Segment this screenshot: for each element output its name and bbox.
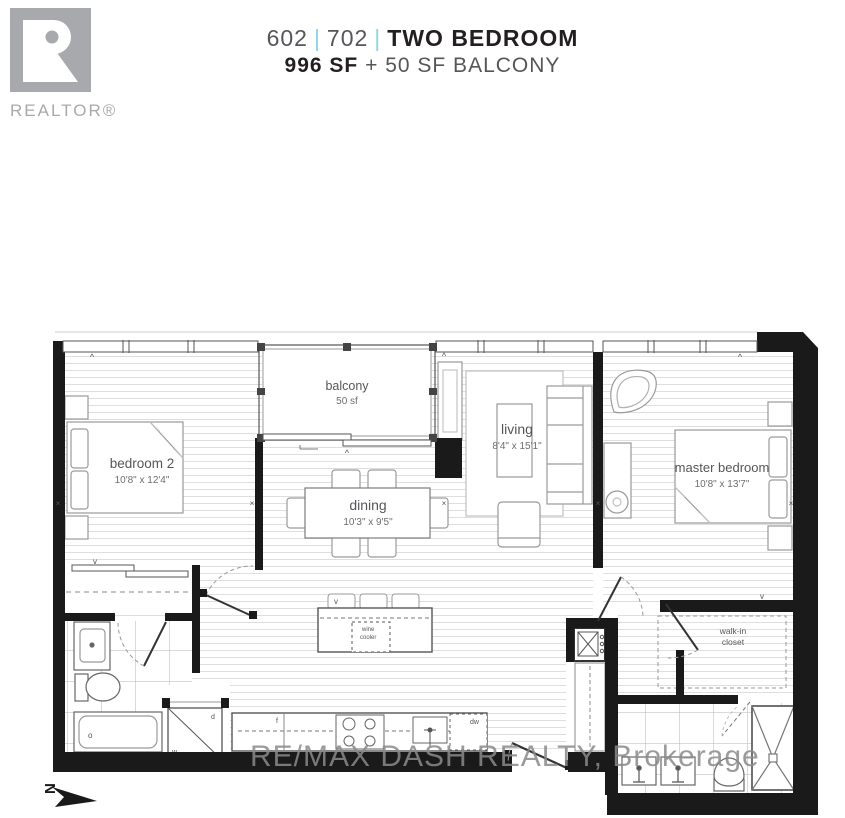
shower-drain [769, 754, 777, 762]
stool [392, 594, 419, 609]
dryer-label: d [211, 714, 215, 721]
v-mark: v [93, 557, 97, 566]
window-master [603, 341, 757, 352]
nightstand [768, 526, 792, 550]
walkin-label: walk-in [719, 626, 747, 636]
v-mark: v [334, 597, 338, 606]
stool [328, 594, 355, 609]
nightstand [65, 396, 88, 419]
wall-bottom-right [607, 793, 807, 815]
sliding-patio-door [343, 440, 431, 446]
living-label: living [501, 421, 533, 437]
pillow [71, 429, 88, 468]
measure-mark: × [250, 499, 255, 508]
column [435, 438, 462, 478]
measure-mark: × [442, 499, 447, 508]
wall-closet [192, 565, 200, 621]
balcony-dims: 50 sf [336, 396, 358, 407]
fridge-label: f [276, 718, 278, 725]
svg-text:closet: closet [722, 637, 745, 647]
pillow [71, 471, 88, 509]
wall-left [53, 341, 65, 772]
floorplan-drawing: wine cooler f dw [0, 0, 845, 818]
wall-ensuite-top [618, 695, 738, 704]
sliding-patio-door [263, 434, 351, 440]
windows [55, 332, 757, 353]
v-mark: v [760, 592, 764, 601]
brokerage-watermark: RE/MAX DASH REALTY, Brokerage [250, 740, 760, 773]
floorplan-page: REALTOR® 602|702|TWO BEDROOM 996 SF + 50… [0, 0, 845, 818]
wall-utility-top [566, 618, 618, 628]
dining-table [305, 488, 430, 538]
bedroom2-label: bedroom 2 [110, 456, 175, 471]
wall-bedroom2 [255, 438, 263, 570]
wine-cooler-label: wine [361, 627, 375, 633]
sliding-door [126, 571, 188, 577]
tub-drain-label: o [88, 731, 93, 740]
north-arrow: N [42, 783, 97, 807]
sliding-door [72, 565, 134, 571]
measure-mark: × [596, 499, 601, 508]
dining-label: dining [349, 497, 386, 513]
master-label: master bedroom [675, 460, 770, 475]
armchair [498, 502, 540, 547]
measure-mark: × [789, 499, 794, 508]
wall-bath-top [63, 613, 115, 621]
wall-master-bottom [660, 600, 793, 612]
balcony-floor [262, 352, 432, 438]
dishwasher-label: dw [470, 719, 480, 726]
dining-chair [368, 536, 396, 557]
dining-chair [332, 536, 360, 557]
nightstand [65, 516, 88, 539]
toilet-bowl [86, 673, 120, 701]
nightstand [768, 402, 792, 426]
svg-text:cooler: cooler [360, 635, 376, 641]
master-dims: 10'8" x 13'7" [695, 479, 750, 490]
north-arrow-pointer [52, 787, 97, 807]
window-living [436, 341, 593, 352]
wall-living-master [593, 352, 603, 568]
bedroom2-dims: 10'8" x 12'4" [115, 475, 170, 486]
balcony-label: balcony [325, 379, 369, 393]
dining-chair [287, 498, 307, 528]
utility-closet [574, 628, 605, 751]
stool [360, 594, 387, 609]
window-bedroom2 [63, 341, 258, 352]
pillow [769, 437, 787, 477]
pillow [769, 480, 787, 518]
living-dims: 8'4" x 15'1" [492, 441, 542, 452]
sofa [547, 386, 592, 504]
measure-mark: × [56, 499, 61, 508]
dining-dims: 10'3" x 9'5" [343, 517, 393, 528]
